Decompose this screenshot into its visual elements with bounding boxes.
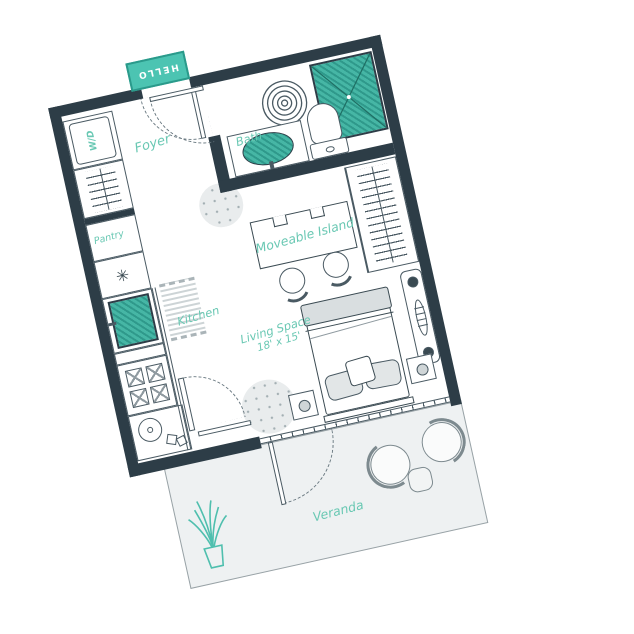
pantry-label: Pantry bbox=[93, 228, 126, 247]
island-seat-notch-icon bbox=[272, 214, 288, 227]
console-knob-icon bbox=[406, 275, 419, 288]
foyer-label: Foyer bbox=[133, 132, 172, 157]
floor-plan-canvas: Veranda HELL bbox=[0, 0, 634, 634]
island-seat-notch-icon bbox=[309, 206, 325, 219]
floor-plan: Veranda HELL bbox=[42, 5, 489, 596]
living-space-label: Living Space 18' x 15' bbox=[238, 312, 315, 358]
nightstand bbox=[406, 353, 437, 384]
nightstand bbox=[288, 390, 319, 421]
stove-burner-icon bbox=[125, 367, 145, 387]
stove-burner-icon bbox=[150, 383, 170, 403]
washer-dryer-label: W/D bbox=[69, 117, 116, 164]
toilet-flush-button-icon bbox=[325, 145, 335, 153]
stove-burner-icon bbox=[145, 363, 165, 383]
sink-drain-icon bbox=[147, 426, 154, 433]
stool-back-icon bbox=[273, 266, 315, 308]
entry-mat: HELLO bbox=[125, 51, 190, 92]
stove-burner-icon bbox=[129, 388, 149, 408]
island-label: Moveable Island bbox=[247, 213, 363, 258]
entry-mat-text: HELLO bbox=[128, 53, 188, 90]
washer-dryer: W/D bbox=[68, 116, 117, 166]
kitchen-sink-icon bbox=[136, 416, 165, 445]
bed bbox=[302, 288, 410, 416]
stool-back-icon bbox=[316, 250, 358, 292]
